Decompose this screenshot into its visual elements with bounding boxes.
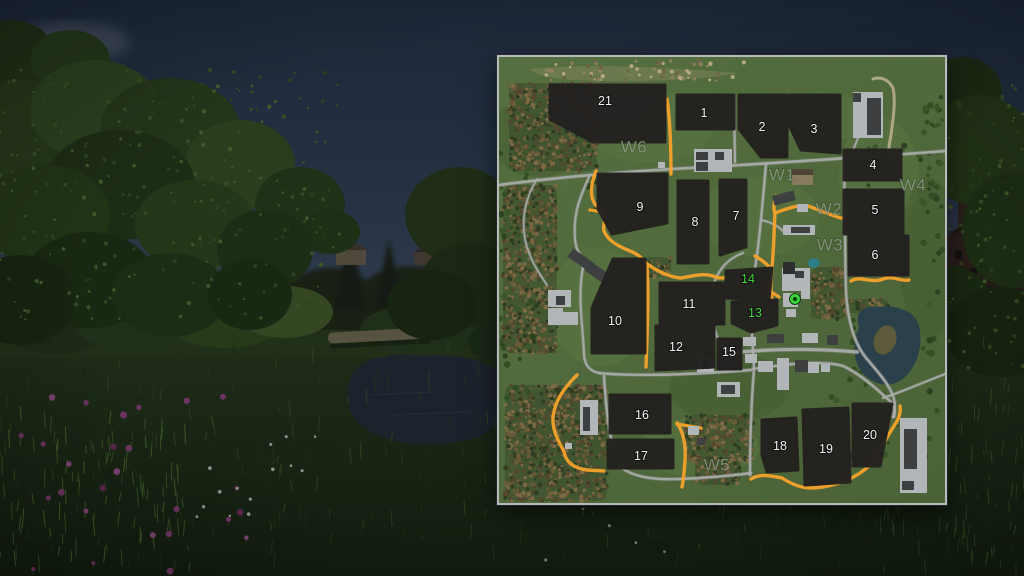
building: [783, 262, 795, 274]
building: [561, 312, 578, 325]
building: [688, 426, 699, 435]
building: [696, 162, 708, 171]
field-8-label: 8: [692, 215, 699, 229]
field-map: 123456789101112131415161718192021 W1W2W3…: [499, 57, 945, 503]
building: [721, 385, 735, 394]
building: [583, 407, 590, 431]
field-12-label: 12: [669, 340, 683, 354]
game-viewport: 123456789101112131415161718192021 W1W2W3…: [0, 0, 1024, 576]
waypoint-label-w5: W5: [704, 456, 731, 475]
building: [786, 309, 796, 317]
building: [853, 93, 861, 102]
field-18-label: 18: [773, 439, 787, 453]
building: [797, 204, 808, 212]
waypoint-label-w1: W1: [769, 166, 796, 185]
field-13-label: 13: [748, 306, 762, 320]
building: [696, 152, 708, 160]
field-16-label: 16: [635, 408, 649, 422]
building: [801, 289, 810, 299]
field-9-label: 9: [637, 200, 644, 214]
field-12[interactable]: [656, 326, 714, 370]
waypoint-label-w2: W2: [816, 200, 843, 219]
building: [548, 308, 563, 325]
field-11-label: 11: [683, 297, 696, 311]
field-6-label: 6: [872, 248, 879, 262]
building: [715, 152, 724, 160]
building: [795, 271, 804, 278]
field-10-label: 10: [608, 314, 622, 328]
building: [697, 438, 705, 445]
field-17-label: 17: [634, 449, 648, 463]
field-6[interactable]: [849, 236, 908, 275]
waypoint-label-w3: W3: [817, 236, 844, 255]
waypoint-label-w6: W6: [621, 138, 648, 157]
waypoint-label-w4: W4: [900, 176, 927, 195]
route-path: [851, 278, 909, 281]
field-9[interactable]: [598, 174, 667, 234]
map-overlay-panel[interactable]: 123456789101112131415161718192021 W1W2W3…: [497, 55, 947, 505]
field-2-label: 2: [759, 120, 766, 134]
building: [802, 333, 818, 343]
building: [658, 162, 665, 168]
building: [867, 98, 881, 135]
building: [827, 335, 838, 345]
field-21-label: 21: [598, 94, 612, 108]
field-14-label: 14: [741, 272, 755, 286]
field-7-label: 7: [733, 209, 740, 223]
field-15-label: 15: [722, 345, 736, 359]
building: [777, 358, 789, 390]
field-20-label: 20: [863, 428, 877, 442]
building: [904, 429, 917, 469]
building: [808, 362, 819, 373]
field-5-label: 5: [872, 203, 879, 217]
building: [791, 227, 810, 233]
building: [758, 361, 773, 372]
building: [743, 337, 756, 346]
field-1-label: 1: [701, 106, 708, 120]
building: [565, 443, 572, 449]
field-4-label: 4: [870, 158, 877, 172]
building: [821, 364, 830, 372]
small-pond: [808, 258, 820, 268]
building: [745, 354, 757, 363]
marker-layer: [790, 294, 801, 305]
field-3-label: 3: [811, 122, 818, 136]
field-19-label: 19: [819, 442, 833, 456]
building: [795, 360, 808, 372]
building: [902, 481, 914, 490]
building: [767, 334, 784, 343]
player-marker-center: [793, 297, 797, 301]
building: [556, 296, 565, 305]
